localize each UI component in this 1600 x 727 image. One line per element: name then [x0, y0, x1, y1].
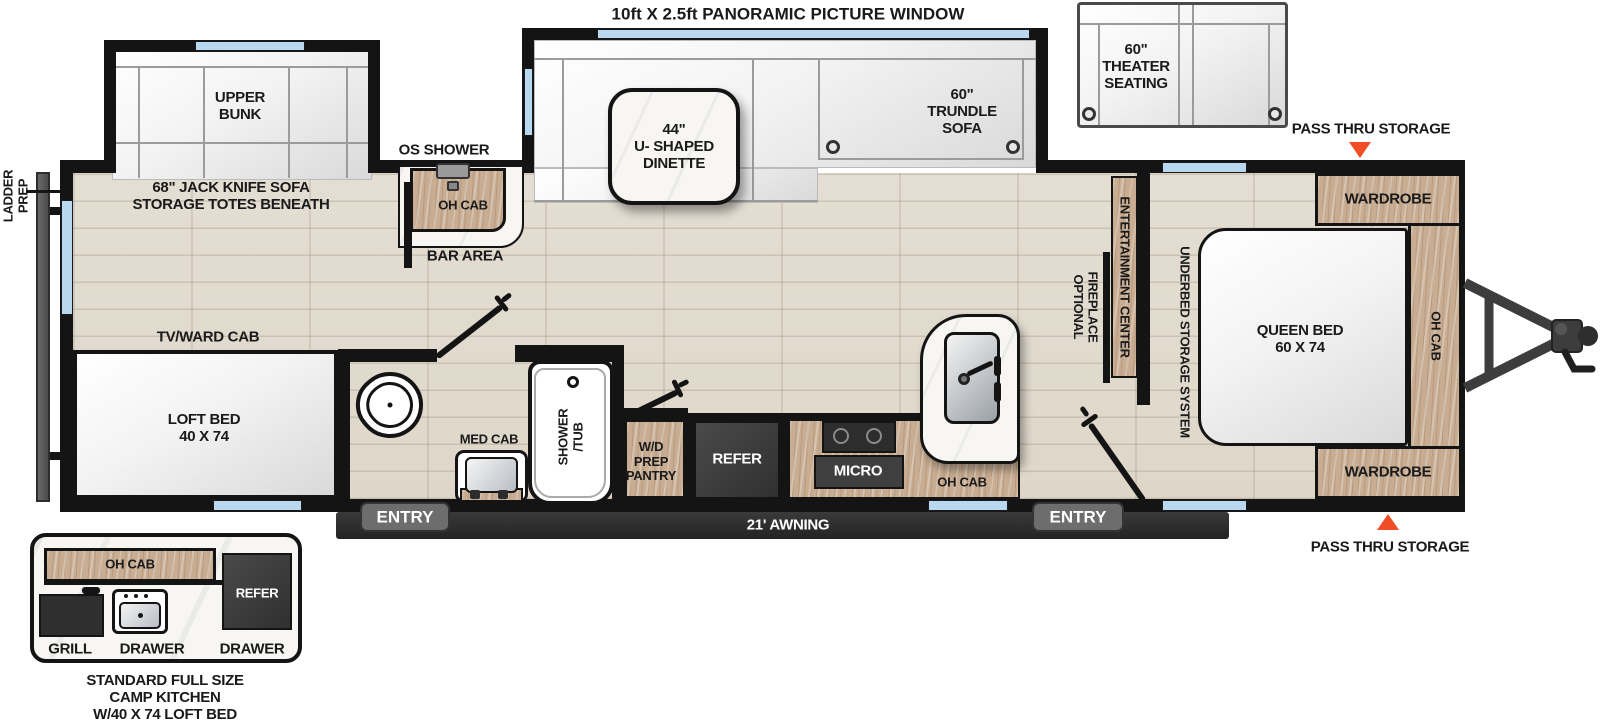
trundle-cupholder — [826, 140, 840, 154]
optional-fireplace-label: OPTIONAL FIREPLACE — [1070, 272, 1099, 343]
drawer-dot — [134, 594, 138, 598]
bench-seam — [562, 58, 564, 201]
wall-top — [1040, 160, 1465, 173]
os-shower-tap — [447, 181, 459, 191]
trundle-cupholder — [1006, 140, 1020, 154]
counter-edge — [788, 413, 922, 420]
panoramic-window — [597, 29, 1030, 39]
burner — [866, 428, 882, 444]
drawer-dot — [124, 594, 128, 598]
dinette-slide-wall — [1036, 40, 1048, 173]
trundle-seam — [818, 58, 820, 160]
pass-thru-arrow-bottom — [1377, 514, 1399, 530]
sofa-seam — [203, 66, 205, 178]
os-shower-fixture — [436, 163, 470, 179]
theater-seam — [1178, 5, 1180, 125]
os-shower-label: OS SHOWER — [399, 143, 490, 160]
bumper-mount — [50, 207, 61, 215]
panoramic-window-label: 10ft X 2.5ft PANORAMIC PICTURE WINDOW — [612, 4, 965, 23]
med-cab-sink — [465, 457, 518, 493]
queen-bed-label: QUEEN BED 60 X 74 — [1257, 323, 1343, 357]
bumper-mount — [50, 452, 61, 460]
kitchen-sink — [944, 332, 1000, 424]
bunk-window — [195, 41, 305, 51]
bottom-window — [928, 500, 1008, 511]
sofa-seam — [138, 66, 140, 178]
theater-seam — [1098, 23, 1100, 125]
micro-label: MICRO — [834, 464, 883, 481]
drawer-dot — [144, 594, 148, 598]
faucet-bar — [994, 356, 1001, 376]
bar-divider-wall — [404, 182, 412, 268]
camp-grill-label: GRILL — [48, 642, 92, 659]
optional-fireplace — [1103, 252, 1110, 383]
theater-cupholder — [1268, 107, 1282, 121]
underbed-storage-label: UNDERBED STORAGE SYSTEM — [1177, 246, 1192, 438]
camp-refer-label: REFER — [236, 587, 279, 602]
kitchen-oh-cab-label: OH CAB — [937, 476, 986, 491]
pass-thru-storage-bottom-label: PASS THRU STORAGE — [1311, 540, 1470, 557]
bench-seam — [752, 58, 754, 201]
burner — [833, 428, 849, 444]
bath-kitchen-wall — [612, 345, 624, 499]
sofa-seam — [116, 142, 368, 144]
camp-kitchen-caption: STANDARD FULL SIZE CAMP KITCHEN W/40 X 7… — [86, 673, 243, 723]
tv-ward-cab-label: TV/WARD CAB — [157, 330, 260, 347]
entertainment-center-label: ENTERTAINMENT CENTER — [1117, 196, 1132, 357]
bath-wall — [338, 349, 350, 499]
pass-thru-storage-top-label: PASS THRU STORAGE — [1292, 122, 1451, 139]
rear-window — [61, 200, 73, 315]
rv-floor-plan: 10ft X 2.5ft PANORAMIC PICTURE WINDOW UP… — [0, 0, 1600, 727]
awning-label: 21' AWNING — [747, 518, 830, 535]
sink-drain — [138, 613, 143, 618]
jack-knife-sofa-label: 68" JACK KNIFE SOFA STORAGE TOTES BENEAT… — [132, 180, 329, 214]
camp-oh-cab-label: OH CAB — [105, 558, 154, 573]
entry-front-label: ENTRY — [1050, 507, 1107, 526]
ladder-prep-tick — [26, 190, 60, 193]
bunk-slide-wall — [104, 40, 116, 173]
sofa-seam — [288, 66, 290, 178]
refer-wall — [780, 413, 788, 499]
upper-bunk-label: UPPER BUNK — [215, 90, 265, 124]
rear-bumper — [36, 172, 50, 502]
bar-oh-cab-label: OH CAB — [438, 199, 487, 214]
wd-pantry-label: W/D PREP PANTRY — [626, 440, 676, 484]
oh-cab-front-label: OH CAB — [1428, 311, 1443, 360]
trundle-seam — [1022, 58, 1024, 160]
wardrobe-bottom-label: WARDROBE — [1345, 465, 1432, 482]
trailer-tongue — [1462, 268, 1600, 403]
theater-seating-label: 60" THEATER SEATING — [1102, 42, 1170, 92]
shower-tub-label: SHOWER /TUB — [556, 409, 585, 466]
refer-wall — [686, 413, 788, 421]
bath-wall — [338, 349, 437, 362]
tub-drain — [567, 376, 579, 388]
faucet-knob — [470, 490, 480, 499]
faucet-bar — [994, 382, 1001, 402]
entry-rear-label: ENTRY — [377, 507, 434, 526]
theater-cupholder — [1082, 107, 1096, 121]
wardrobe-top-label: WARDROBE — [1345, 192, 1432, 209]
refer-label: REFER — [712, 452, 761, 469]
dinette-side-window — [524, 68, 533, 136]
theater-seam — [1080, 23, 1285, 25]
trundle-seam — [818, 158, 1024, 160]
camp-drawer-left-label: DRAWER — [120, 642, 185, 659]
camp-grill — [39, 594, 104, 637]
ladder-prep-label: LADDER PREP — [1, 170, 30, 222]
bottom-window — [1162, 500, 1247, 511]
bottom-window — [213, 500, 302, 511]
bedroom-window — [1162, 162, 1247, 173]
trundle-sofa-label: 60" TRUNDLE SOFA — [927, 87, 997, 137]
bar-area-label: BAR AREA — [427, 249, 503, 266]
theater-seam — [1192, 5, 1194, 125]
loft-bed-label: LOFT BED 40 X 74 — [168, 412, 241, 446]
bedroom-wall — [1137, 173, 1150, 405]
bunk-slide-wall — [368, 40, 380, 173]
pass-thru-arrow-top — [1349, 142, 1371, 158]
dinette-label: 44" U- SHAPED DINETTE — [634, 122, 714, 172]
refer-wall — [686, 413, 694, 499]
sofa-seam — [346, 66, 348, 178]
med-cab-label: MED CAB — [460, 433, 519, 448]
sofa-seam — [116, 66, 368, 68]
camp-divider — [44, 580, 222, 585]
camp-drawer-right-label: DRAWER — [220, 642, 285, 659]
bench-seam — [534, 58, 1036, 60]
grill-handle — [82, 587, 100, 594]
faucet-knob — [498, 490, 508, 499]
